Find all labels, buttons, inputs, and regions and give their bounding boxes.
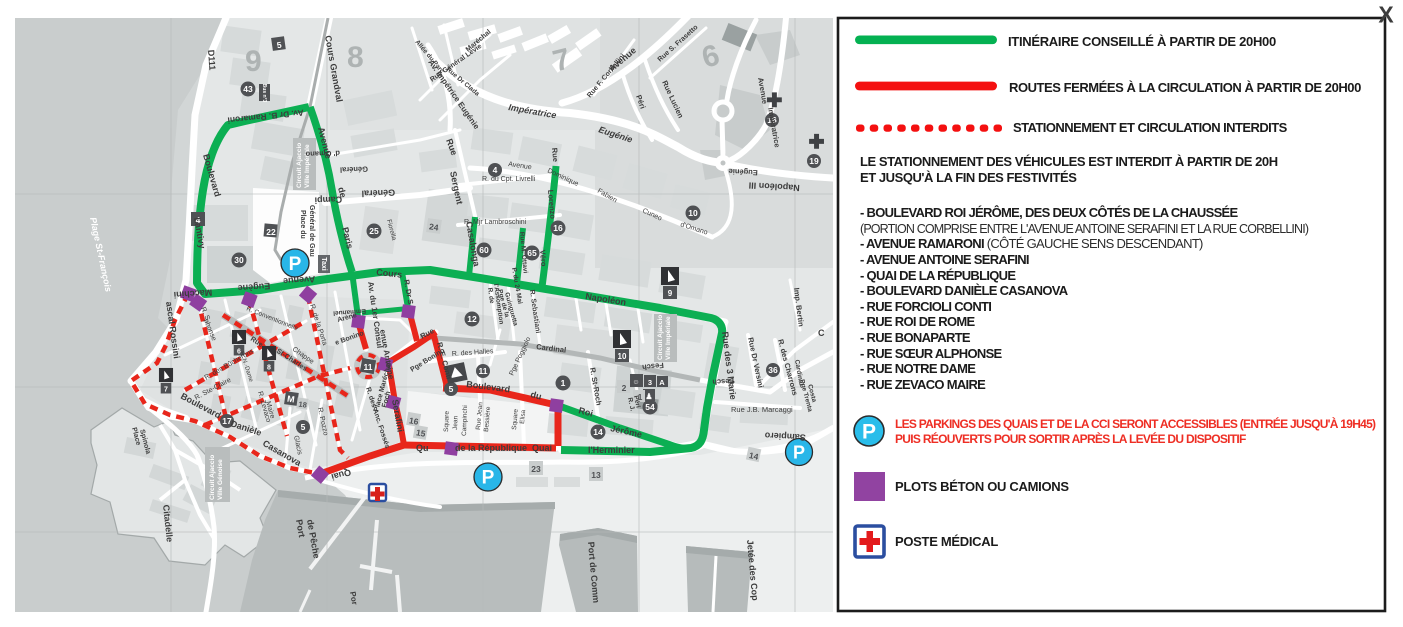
svg-text:Taxi: Taxi [320,257,327,271]
svg-text:5: 5 [449,384,454,394]
svg-text:2: 2 [622,383,627,393]
svg-text:30: 30 [234,255,244,265]
svg-text:Ville Génoise: Ville Génoise [217,459,224,500]
svg-text:A: A [659,378,665,387]
svg-text:22: 22 [266,227,276,237]
svg-text:1: 1 [561,378,566,388]
svg-text:R. Mjr Lambroschini: R. Mjr Lambroschini [464,219,527,226]
svg-text:ET JUSQU'À LA FIN DES FESTIVIT: ET JUSQU'À LA FIN DES FESTIVITÉS [860,170,1077,185]
svg-text:Rue J.B. Marcaggi: Rue J.B. Marcaggi [731,405,793,414]
svg-text:PUIS RÉOUVERTS POUR SORTIR APR: PUIS RÉOUVERTS POUR SORTIR APRÈS LA LEVÉ… [895,431,1246,446]
svg-text:25: 25 [369,226,379,236]
svg-text:Qu: Qu [416,443,429,453]
svg-text:♟: ♟ [645,392,652,401]
svg-text:(PORTION COMPRISE ENTRE L'AVEN: (PORTION COMPRISE ENTRE L'AVENUE ANTOINE… [860,222,1309,236]
svg-text:Véro: Véro [538,249,548,267]
svg-text:11: 11 [479,366,488,376]
svg-text:Campi: Campi [314,194,342,205]
svg-text:36: 36 [768,365,778,375]
svg-text:Général: Général [340,164,368,174]
svg-text:11: 11 [364,362,373,372]
svg-text:- RUE BONAPARTE: - RUE BONAPARTE [860,330,971,345]
svg-text:16: 16 [408,415,419,427]
svg-text:R. du Cpt. Livrelli: R. du Cpt. Livrelli [482,176,536,183]
svg-text:- QUAI DE LA RÉPUBLIQUE: - QUAI DE LA RÉPUBLIQUE [860,268,1016,283]
svg-text:Général: Général [361,188,395,199]
svg-text:Eugénie: Eugénie [728,167,758,178]
svg-text:Circuit Ajaccio: Circuit Ajaccio [657,315,664,360]
svg-text:7: 7 [164,387,168,394]
svg-text:Fesch: Fesch [712,377,735,387]
svg-text:Général de Gau: Général de Gau [308,205,315,257]
svg-text:☺: ☺ [632,379,639,386]
svg-text:Jean: Jean [452,415,460,430]
svg-text:- RUE ZEVACO MAIRE: - RUE ZEVACO MAIRE [860,377,986,392]
svg-text:- RUE SŒUR ALPHONSE: - RUE SŒUR ALPHONSE [860,346,1003,361]
svg-text:P: P [482,468,495,489]
svg-text:8: 8 [267,365,271,372]
svg-text:9: 9 [668,289,673,298]
svg-text:Rue: Rue [550,147,560,162]
svg-text:d' Omano: d' Omano [305,149,340,159]
svg-text:14: 14 [593,427,603,437]
svg-text:Circuit Ajaccio: Circuit Ajaccio [296,143,303,188]
svg-text:16: 16 [553,223,563,233]
svg-text:4: 4 [493,165,498,175]
svg-text:STATIONNEMENT ET CIRCULATION I: STATIONNEMENT ET CIRCULATION INTERDITS [1013,120,1288,135]
svg-text:POSTE MÉDICAL: POSTE MÉDICAL [895,534,998,549]
svg-text:M: M [286,394,295,405]
svg-text:- RUE FORCIOLI CONTI: - RUE FORCIOLI CONTI [860,299,991,314]
svg-text:X: X [1378,2,1394,28]
svg-text:de la République: de la République [455,443,527,453]
svg-text:Bus n°3: Bus n°3 [261,84,267,103]
svg-text:P: P [793,443,805,463]
svg-text:l'Herminier: l'Herminier [588,445,635,455]
svg-text:PLOTS BÉTON OU CAMIONS: PLOTS BÉTON OU CAMIONS [895,479,1069,494]
svg-text:15: 15 [415,427,426,439]
svg-text:LE STATIONNEMENT DES VÉHICULES: LE STATIONNEMENT DES VÉHICULES EST INTER… [860,154,1278,169]
svg-text:Elisa: Elisa [519,409,527,424]
svg-text:ITINÉRAIRE CONSEILLÉ À PARTIR: ITINÉRAIRE CONSEILLÉ À PARTIR DE 20H00 [1008,34,1276,49]
svg-text:5: 5 [301,422,306,432]
svg-text:P: P [289,254,302,275]
svg-text:8: 8 [347,41,364,74]
svg-text:65: 65 [527,248,537,258]
svg-text:ROUTES FERMÉES À LA CIRCULATIO: ROUTES FERMÉES À LA CIRCULATION À PARTIR… [1009,80,1361,95]
svg-text:43: 43 [243,84,253,94]
svg-text:12: 12 [467,314,477,324]
svg-text:- AVENUE RAMARONI (CÔTÉ GAUCHE: - AVENUE RAMARONI (CÔTÉ GAUCHE SENS DESC… [860,236,1203,251]
svg-text:54: 54 [645,402,655,412]
svg-text:Circuit Ajaccio: Circuit Ajaccio [209,455,216,500]
svg-text:60: 60 [479,245,489,255]
svg-text:18: 18 [298,400,308,410]
svg-text:- RUE NOTRE DAME: - RUE NOTRE DAME [860,361,976,376]
svg-text:13: 13 [591,470,601,480]
svg-text:- AVENUE ANTOINE SERAFINI: - AVENUE ANTOINE SERAFINI [860,252,1029,267]
svg-text:Place du: Place du [299,210,306,239]
svg-text:- BOULEVARD DANIÈLE CASANOVA: - BOULEVARD DANIÈLE CASANOVA [860,283,1069,298]
svg-text:Campinchi: Campinchi [461,405,469,436]
svg-text:P: P [862,421,876,444]
svg-text:23: 23 [531,464,541,474]
svg-text:LES PARKINGS DES QUAIS ET DE L: LES PARKINGS DES QUAIS ET DE LA CCI SERO… [895,416,1376,431]
svg-text:19: 19 [809,156,819,166]
svg-text:C: C [818,328,825,338]
svg-text:- BOULEVARD ROI JÉRÔME, DES DE: - BOULEVARD ROI JÉRÔME, DES DEUX CÔTÉS D… [860,205,1239,220]
svg-text:10: 10 [688,208,698,218]
svg-text:Quai: Quai [532,443,552,453]
svg-text:10: 10 [618,352,627,361]
svg-text:D111: D111 [206,49,217,70]
svg-text:9: 9 [245,45,262,78]
svg-text:Square: Square [443,410,451,432]
svg-text:24: 24 [428,221,439,232]
svg-text:- RUE ROI DE ROME: - RUE ROI DE ROME [860,314,976,329]
svg-text:Ville Impériale: Ville Impériale [665,316,672,360]
svg-text:3: 3 [648,378,652,387]
